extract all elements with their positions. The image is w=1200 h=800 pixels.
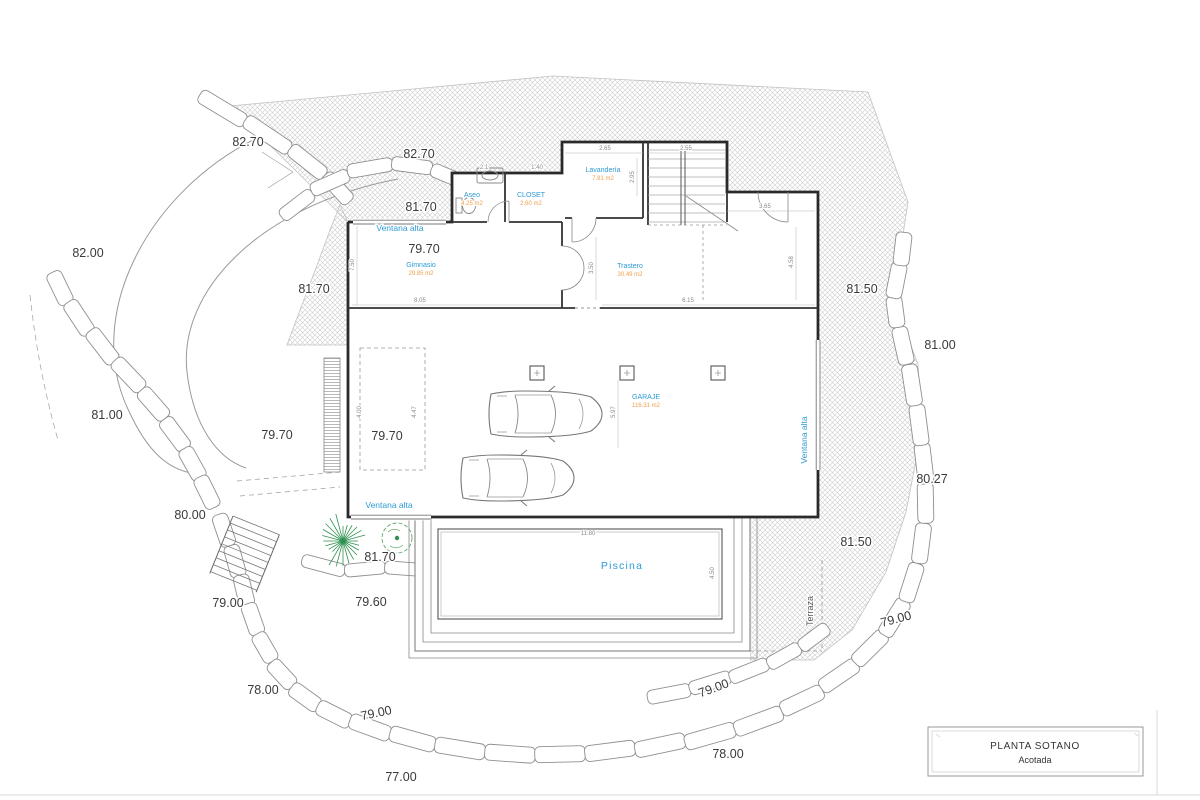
elevation-label: 81.70 bbox=[405, 200, 436, 214]
elevation-label: 81.50 bbox=[846, 282, 877, 296]
stone-block bbox=[917, 482, 934, 523]
room-area-label: 7.81 m2 bbox=[592, 176, 614, 182]
dimension-label: 2.65 bbox=[599, 146, 611, 152]
elevation-label: 80.00 bbox=[174, 508, 205, 522]
elevation-label: 79.60 bbox=[355, 595, 386, 609]
drawing-page: 2.11.402.652.552.953.657.503.504.588.056… bbox=[0, 0, 1200, 800]
title-block: PLANTA SOTANO Acotada bbox=[928, 727, 1143, 776]
elevation-label: 82.70 bbox=[232, 135, 263, 149]
dimension-label: 2.1 bbox=[480, 165, 489, 171]
room-area-label: 4.25 m2 bbox=[461, 201, 483, 207]
room-name-label: Trastero bbox=[617, 263, 643, 270]
dimension-label: 4.58 bbox=[789, 256, 795, 268]
elevation-label: 79.70 bbox=[261, 428, 292, 442]
high-window-label: Ventana alta bbox=[365, 500, 413, 510]
elevation-label: 79.70 bbox=[408, 242, 439, 256]
elevation-label: 81.00 bbox=[924, 338, 955, 352]
elevation-label: 82.70 bbox=[403, 147, 434, 161]
room-name-label: Gimnasio bbox=[406, 262, 436, 269]
plan-title: PLANTA SOTANO bbox=[990, 741, 1080, 752]
dimension-label: 3.50 bbox=[589, 262, 595, 274]
room-area-label: 2.60 m2 bbox=[520, 201, 542, 207]
dimension-label: 4.00 bbox=[357, 406, 363, 418]
elevation-label: 80.27 bbox=[916, 472, 947, 486]
dimension-label: 2.55 bbox=[680, 146, 692, 152]
terrace-label: Terraza bbox=[805, 596, 815, 626]
room-area-label: 116.31 m2 bbox=[632, 403, 661, 409]
dimension-label: 6.15 bbox=[682, 298, 694, 304]
dimension-label: 1.40 bbox=[531, 165, 543, 171]
high-window-label: Ventana alta bbox=[376, 223, 424, 233]
dimension-label: 5.97 bbox=[611, 406, 617, 418]
elevation-label: 79.00 bbox=[212, 596, 243, 610]
elevation-label: 81.50 bbox=[840, 535, 871, 549]
elevation-label: 77.00 bbox=[385, 770, 416, 784]
pool-label: Piscina bbox=[601, 560, 643, 572]
pool-water bbox=[438, 529, 722, 619]
dimension-label: 4.47 bbox=[412, 406, 418, 418]
dimension-label: 7.50 bbox=[350, 259, 356, 271]
elevation-label: 81.70 bbox=[298, 282, 329, 296]
plan-subtitle: Acotada bbox=[1018, 755, 1051, 765]
dimension-label: 2.95 bbox=[630, 171, 636, 183]
room-area-label: 30.49 m2 bbox=[617, 272, 643, 278]
room-name-label: GARAJE bbox=[632, 394, 660, 401]
elevation-label: 81.70 bbox=[364, 550, 395, 564]
stone-block bbox=[893, 231, 913, 266]
room-name-label: CLOSET bbox=[517, 192, 546, 199]
dimension-label: 3.65 bbox=[759, 204, 771, 210]
high-window-label: Ventana alta bbox=[799, 416, 809, 464]
room-area-label: 29.85 m2 bbox=[408, 271, 434, 277]
room-name-label: Lavandería bbox=[585, 167, 620, 174]
dimension-label: 4.50 bbox=[710, 567, 716, 579]
elevation-label: 78.00 bbox=[712, 747, 743, 761]
stone-block bbox=[535, 746, 586, 763]
floor-plan-canvas: 2.11.402.652.552.953.657.503.504.588.056… bbox=[0, 0, 1200, 800]
elevation-label: 79.70 bbox=[371, 429, 402, 443]
dimension-label: 11.80 bbox=[581, 531, 596, 537]
elevation-label: 78.00 bbox=[247, 683, 278, 697]
elevation-label: 82.00 bbox=[72, 246, 103, 260]
louver-strip bbox=[324, 358, 340, 472]
elevation-label: 81.00 bbox=[91, 408, 122, 422]
dimension-label: 8.05 bbox=[414, 298, 426, 304]
room-name-label: Aseo bbox=[464, 192, 480, 199]
stone-block bbox=[484, 744, 536, 764]
